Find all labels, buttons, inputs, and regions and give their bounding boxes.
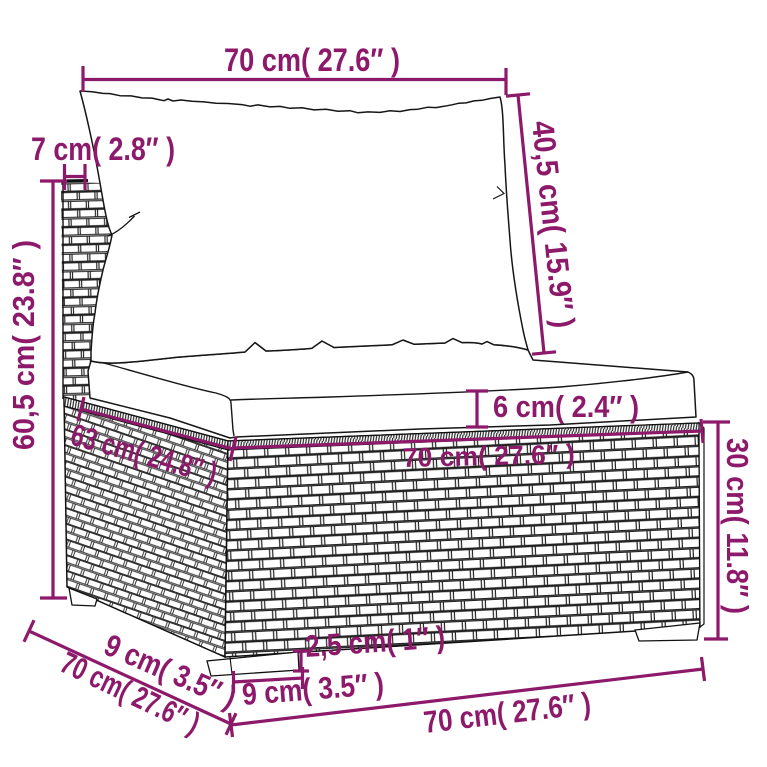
svg-text:70 cm( 27.6″ ): 70 cm( 27.6″ ) <box>224 42 400 78</box>
svg-text:6 cm( 2.4″ ): 6 cm( 2.4″ ) <box>493 389 639 424</box>
svg-text:70 cm( 27.6″ ): 70 cm( 27.6″ ) <box>402 439 575 473</box>
svg-text:60,5 cm( 23.8″ ): 60,5 cm( 23.8″ ) <box>6 240 41 450</box>
svg-text:7 cm( 2.8″ ): 7 cm( 2.8″ ) <box>31 131 175 167</box>
svg-text:30 cm( 11.8″ ): 30 cm( 11.8″ ) <box>720 438 755 614</box>
